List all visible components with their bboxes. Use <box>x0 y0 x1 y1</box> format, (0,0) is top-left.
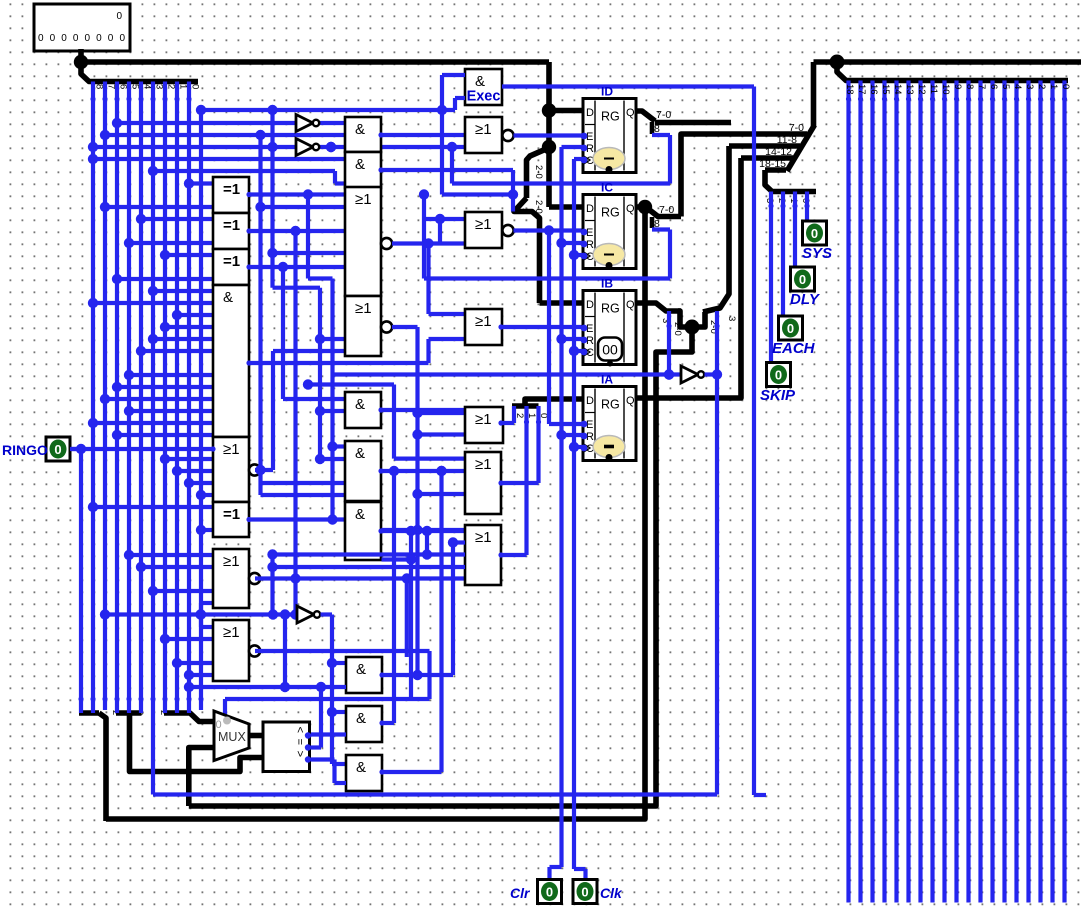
svg-text:0: 0 <box>787 321 794 336</box>
svg-text:11: 11 <box>928 84 939 94</box>
svg-text:15: 15 <box>880 84 891 95</box>
svg-text:MUX: MUX <box>218 730 246 744</box>
svg-text:2: 2 <box>1036 84 1047 89</box>
svg-text:=: = <box>295 739 307 745</box>
svg-text:&: & <box>475 73 485 90</box>
svg-text:&: & <box>355 445 365 462</box>
svg-text:0: 0 <box>581 885 588 900</box>
svg-text:&: & <box>356 661 366 678</box>
svg-text:&: & <box>223 289 233 306</box>
svg-text:>: > <box>295 727 307 733</box>
svg-text:17: 17 <box>856 84 867 95</box>
svg-text:≥1: ≥1 <box>475 411 492 428</box>
svg-text:2-0: 2-0 <box>533 200 544 214</box>
svg-text:0: 0 <box>116 11 122 22</box>
svg-text:6: 6 <box>988 84 999 89</box>
svg-text:&: & <box>355 156 365 173</box>
svg-text:&: & <box>355 506 365 523</box>
svg-text:Q: Q <box>626 395 635 407</box>
svg-text:=1: =1 <box>223 506 240 523</box>
svg-text:RG: RG <box>601 110 620 124</box>
svg-text:3: 3 <box>726 316 737 321</box>
svg-text:ID: ID <box>601 85 613 99</box>
svg-text:13: 13 <box>904 84 915 95</box>
svg-text:&: & <box>356 710 366 727</box>
svg-text:Q: Q <box>626 107 635 119</box>
svg-text:14: 14 <box>892 84 903 95</box>
svg-text:=1: =1 <box>223 253 240 270</box>
svg-text:≥1: ≥1 <box>223 553 240 570</box>
svg-text:IC: IC <box>601 181 613 195</box>
svg-text:7: 7 <box>106 84 117 89</box>
svg-text:Q: Q <box>626 203 635 215</box>
svg-text:Exec: Exec <box>467 89 501 105</box>
svg-text:<: < <box>295 751 307 757</box>
svg-text:8: 8 <box>964 84 975 89</box>
svg-text:4: 4 <box>142 84 153 89</box>
svg-text:≥1: ≥1 <box>475 313 492 330</box>
svg-text:Q: Q <box>626 299 635 311</box>
svg-text:RG: RG <box>601 206 620 220</box>
svg-text:00: 00 <box>602 342 618 358</box>
svg-text:2: 2 <box>166 84 177 89</box>
svg-text:0: 0 <box>799 272 806 287</box>
svg-text:≥1: ≥1 <box>355 300 372 317</box>
svg-text:D: D <box>586 107 594 119</box>
svg-text:Clr: Clr <box>510 885 531 901</box>
svg-text:EACH: EACH <box>772 340 816 357</box>
svg-text:1: 1 <box>1048 84 1059 89</box>
svg-text:10: 10 <box>940 84 951 95</box>
svg-text:≥1: ≥1 <box>223 441 240 458</box>
svg-text:≥1: ≥1 <box>355 191 372 208</box>
svg-text:2-0: 2-0 <box>672 322 683 336</box>
svg-text:D: D <box>586 203 594 215</box>
svg-text:RINGO: RINGO <box>2 442 48 458</box>
svg-text:0: 0 <box>546 885 553 900</box>
svg-text:Clk: Clk <box>600 885 623 901</box>
svg-text:≥1: ≥1 <box>475 529 492 546</box>
svg-text:5: 5 <box>1000 84 1011 89</box>
svg-text:0: 0 <box>54 442 61 457</box>
svg-text:SYS: SYS <box>802 245 832 262</box>
svg-text:=1: =1 <box>223 217 240 234</box>
svg-text:D: D <box>586 395 594 407</box>
svg-text:&: & <box>355 396 365 413</box>
svg-text:0: 0 <box>216 719 222 731</box>
svg-text:2-0: 2-0 <box>533 165 544 179</box>
svg-text:4: 4 <box>1012 84 1023 89</box>
svg-text:≥1: ≥1 <box>223 624 240 641</box>
svg-text:IB: IB <box>601 277 613 291</box>
svg-text:=1: =1 <box>223 181 240 198</box>
svg-text:IA: IA <box>601 373 613 387</box>
svg-text:&: & <box>355 121 365 138</box>
svg-text:18: 18 <box>844 84 855 95</box>
svg-text:0: 0 <box>1060 84 1071 89</box>
svg-text:0 0 0 0 0 0 0 0: 0 0 0 0 0 0 0 0 <box>38 33 125 44</box>
svg-text:7-0: 7-0 <box>659 204 674 216</box>
svg-text:8: 8 <box>94 84 105 89</box>
svg-text:7-0: 7-0 <box>789 122 804 134</box>
svg-text:3: 3 <box>519 208 530 213</box>
svg-text:0: 0 <box>190 84 201 89</box>
svg-text:7: 7 <box>976 84 987 89</box>
svg-text:3: 3 <box>154 84 165 89</box>
svg-text:7-0: 7-0 <box>656 109 671 121</box>
svg-text:D: D <box>586 299 594 311</box>
svg-text:0: 0 <box>811 226 818 241</box>
svg-text:DLY: DLY <box>790 291 821 308</box>
svg-text:6: 6 <box>118 84 129 89</box>
svg-text:RG: RG <box>601 302 620 316</box>
svg-text:12: 12 <box>916 84 927 95</box>
svg-text:5: 5 <box>130 84 141 89</box>
svg-text:16: 16 <box>868 84 879 95</box>
svg-text:≥1: ≥1 <box>475 121 492 138</box>
svg-text:≥1: ≥1 <box>475 216 492 233</box>
svg-text:1: 1 <box>178 84 189 89</box>
svg-text:≥1: ≥1 <box>475 456 492 473</box>
svg-text:SKIP: SKIP <box>760 387 796 404</box>
svg-text:0: 0 <box>775 368 782 383</box>
svg-text:&: & <box>356 759 366 776</box>
svg-text:3: 3 <box>1024 84 1035 89</box>
svg-text:RG: RG <box>601 398 620 412</box>
svg-text:9: 9 <box>952 84 963 89</box>
